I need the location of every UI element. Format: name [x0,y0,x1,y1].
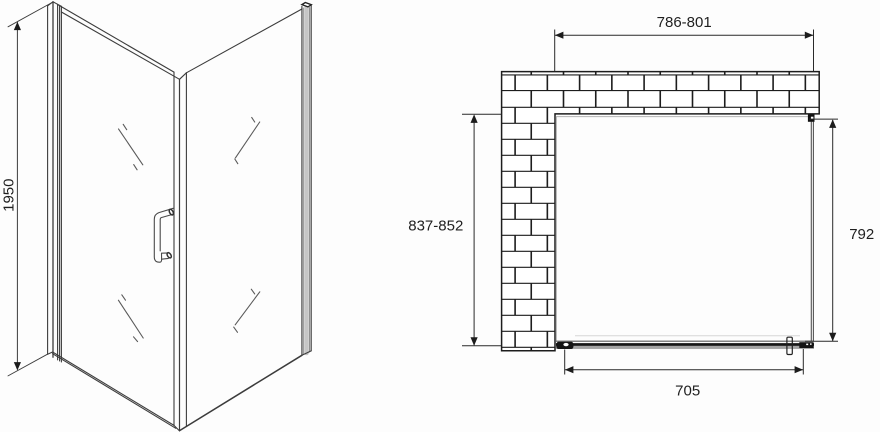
svg-text:792: 792 [849,226,874,243]
svg-text:1950: 1950 [1,179,18,212]
svg-text:786-801: 786-801 [657,14,712,31]
svg-text:705: 705 [675,382,700,399]
svg-text:837-852: 837-852 [408,217,463,234]
